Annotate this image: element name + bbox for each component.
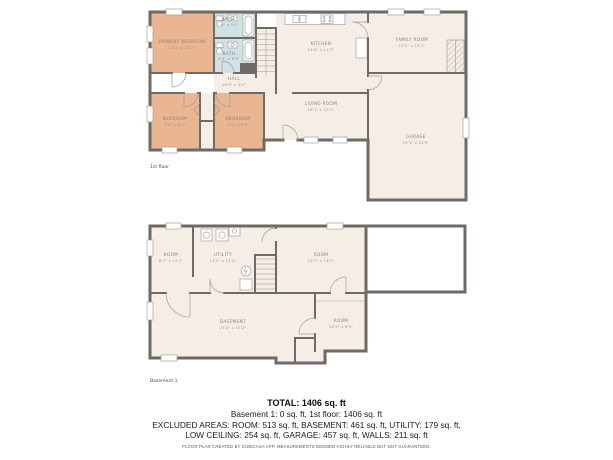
room-label: BEDROOM: [163, 116, 187, 121]
floor-plans-canvas: PRIMARY BEDROOM 13'1" x 11'1" BATH 7'4" …: [0, 0, 613, 398]
room-label: BEDROOM: [226, 116, 250, 121]
room-dims: 13'2" x 13'2": [210, 259, 237, 263]
floor-areas-text: Basement 1: 0 sq. ft, 1st floor: 1406 sq…: [0, 409, 613, 420]
water-heater-icon: [241, 266, 251, 276]
washer-icon: [201, 229, 212, 241]
room-dims: 27'2" x 15'2": [220, 326, 247, 330]
room-dims: 18'7" x 13'1": [308, 259, 335, 263]
room-dims: 8'4" x 6'9": [218, 57, 240, 61]
utility-box: [240, 279, 252, 290]
area-summary: TOTAL: 1406 sq. ft Basement 1: 0 sq. ft,…: [0, 398, 613, 449]
room-label: KITCHEN: [311, 41, 332, 46]
bathroom-sink-icon: [228, 42, 237, 48]
hatched-stairwell: [447, 40, 464, 73]
bathtub-icon: [243, 14, 254, 36]
fridge-icon: [356, 38, 367, 58]
chimney-block: [240, 63, 256, 73]
room-label: BASEMENT: [220, 319, 246, 324]
room-label: LIVING ROOM: [305, 101, 337, 106]
basement-floor-plan: ROOM 8'7" x 12'7" UTILITY 13'2" x 13'2" …: [147, 223, 465, 384]
room-dims: 10'2" x 9'9": [329, 325, 353, 329]
unfinished-room-area: [366, 226, 465, 292]
room-dims: 16'3" x 3'0": [222, 83, 246, 87]
room-label: FAMILY ROOM: [396, 37, 428, 42]
room-dims: 9'1" x 8'5": [227, 123, 249, 127]
room-dims: 7'4" x 5'2": [217, 23, 239, 27]
room-label: HALL: [228, 76, 240, 81]
room-dims: 8'7" x 12'7": [159, 259, 183, 263]
room-label: BATH: [223, 51, 236, 56]
basement-filled-area: [150, 226, 366, 363]
room-label: ROOM: [164, 252, 179, 257]
room-dims: 9'9" x 8'5": [164, 123, 186, 127]
room-dims: 13'1" x 11'1": [169, 46, 196, 50]
total-area-text: TOTAL: 1406 sq. ft: [0, 398, 613, 409]
room-dims: 19'2" x 13'1": [399, 44, 426, 48]
room-label: ROOM: [334, 318, 349, 323]
excluded-areas-text-2: LOW CEILING: 254 sq. ft, GARAGE: 457 sq.…: [0, 430, 613, 441]
room-dims: 19'1" x 20'9": [403, 141, 430, 145]
disclaimer-text: FLOOR PLAN CREATED BY CUBICASA APP. MEAS…: [0, 444, 613, 449]
bedroom-1-area: [150, 93, 200, 150]
basement-label: Basement 1: [150, 378, 178, 384]
room-label: ROOM: [314, 252, 329, 257]
kitchen-counter: [285, 14, 345, 25]
room-label: PRIMARY BEDROOM: [159, 39, 206, 44]
entry-corridor-area: [264, 93, 276, 140]
room-dims: 16'1" x 12'1": [308, 108, 335, 112]
floor1-label: 1st floor: [150, 164, 169, 170]
floor-plan-page: PRIMARY BEDROOM 13'1" x 11'1" BATH 7'4" …: [0, 0, 613, 460]
bathtub-icon: [243, 40, 254, 61]
room-label: UTILITY: [214, 252, 232, 257]
room-label: BATH: [222, 17, 235, 22]
bedroom-2-area: [214, 93, 264, 150]
room-dims: 13'4" x 11'7": [308, 48, 335, 52]
dryer-icon: [216, 229, 228, 241]
first-floor-plan: PRIMARY BEDROOM 13'1" x 11'1" BATH 7'4" …: [147, 9, 469, 200]
room-label: GARAGE: [406, 134, 426, 139]
excluded-areas-text-1: EXCLUDED AREAS: ROOM: 513 sq. ft, BASEME…: [0, 420, 613, 431]
